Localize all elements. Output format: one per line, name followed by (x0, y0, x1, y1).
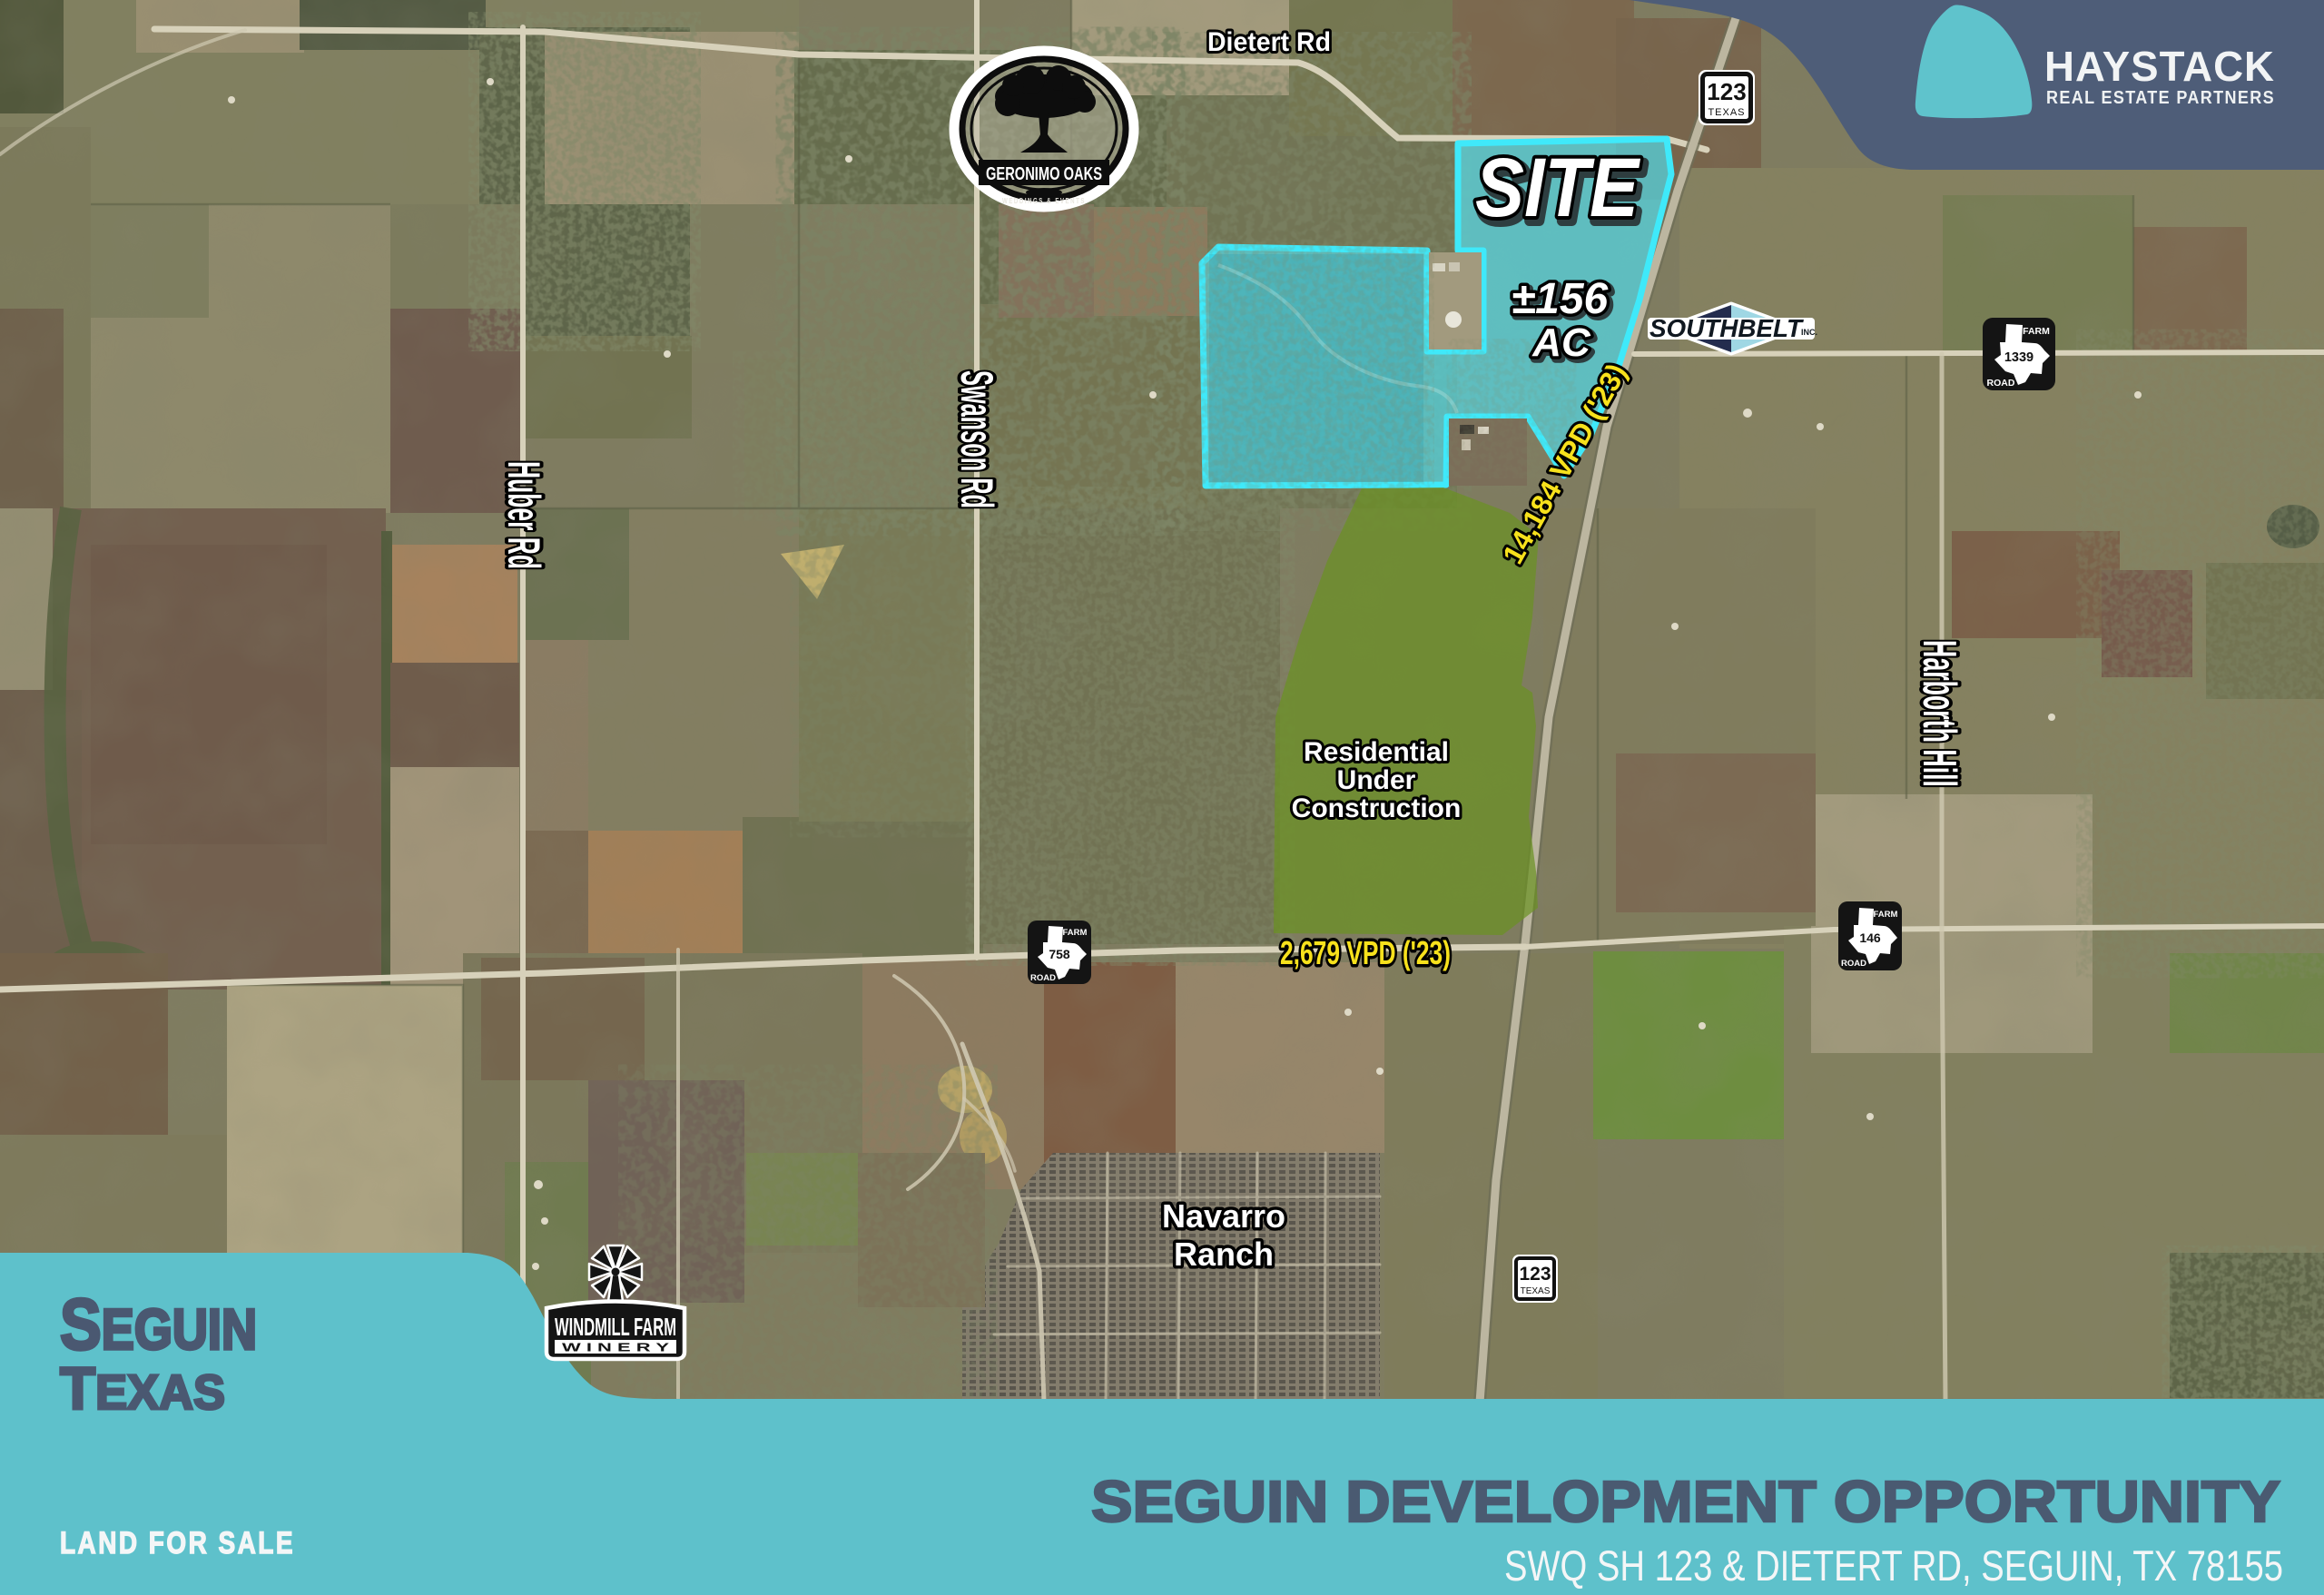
svg-text:FARM: FARM (1063, 928, 1088, 938)
svg-text:Construction: Construction (1292, 793, 1462, 823)
svg-text:W I N E R Y: W I N E R Y (562, 1341, 670, 1354)
svg-text:SWQ SH 123 & DIETERT RD, SEGUI: SWQ SH 123 & DIETERT RD, SEGUIN, TX 7815… (1504, 1541, 2283, 1590)
svg-text:146: 146 (1859, 930, 1881, 945)
svg-text:WINDMILL FARM: WINDMILL FARM (555, 1313, 676, 1341)
svg-text:HAYSTACK: HAYSTACK (2044, 43, 2275, 90)
svg-text:758: 758 (1049, 947, 1070, 961)
svg-text:ROAD: ROAD (1030, 973, 1056, 983)
svg-text:ROAD: ROAD (1987, 378, 2015, 389)
svg-text:Swanson Rd: Swanson Rd (951, 370, 1002, 508)
svg-text:SEGUIN DEVELOPMENT OPPORTUNITY: SEGUIN DEVELOPMENT OPPORTUNITY (1091, 1469, 2280, 1534)
svg-text:WEDDINGS & EVENTS: WEDDINGS & EVENTS (1002, 197, 1086, 205)
svg-text:Ranch: Ranch (1174, 1236, 1274, 1273)
svg-text:Dietert Rd: Dietert Rd (1207, 27, 1331, 57)
svg-text:INC.: INC. (1801, 328, 1817, 337)
svg-text:REAL ESTATE PARTNERS: REAL ESTATE PARTNERS (2046, 88, 2275, 108)
svg-text:GERONIMO OAKS: GERONIMO OAKS (986, 164, 1102, 184)
svg-text:TEXAS: TEXAS (1521, 1286, 1551, 1296)
svg-text:Navarro: Navarro (1162, 1197, 1285, 1235)
svg-text:FARM: FARM (2023, 326, 2050, 337)
svg-text:SOUTHBELT: SOUTHBELT (1649, 314, 1805, 342)
svg-text:AC: AC (1531, 320, 1591, 365)
svg-text:FARM: FARM (1874, 910, 1898, 920)
svg-text:Residential: Residential (1304, 737, 1449, 767)
svg-text:Huber Rd: Huber Rd (498, 461, 549, 569)
svg-text:123: 123 (1707, 78, 1746, 105)
svg-text:1339: 1339 (2004, 350, 2033, 365)
svg-text:Harborth Hill: Harborth Hill (1913, 640, 1965, 787)
svg-text:ROAD: ROAD (1841, 959, 1866, 969)
svg-text:±156: ±156 (1512, 275, 1609, 323)
svg-text:TEXAS: TEXAS (1708, 107, 1745, 118)
svg-text:Under: Under (1337, 765, 1416, 795)
svg-text:2,679 VPD ('23): 2,679 VPD ('23) (1280, 934, 1451, 971)
svg-text:SITE: SITE (1475, 142, 1640, 234)
svg-text:TEXAS: TEXAS (60, 1354, 225, 1422)
svg-text:123: 123 (1519, 1264, 1551, 1285)
svg-text:LAND FOR SALE: LAND FOR SALE (60, 1526, 295, 1561)
